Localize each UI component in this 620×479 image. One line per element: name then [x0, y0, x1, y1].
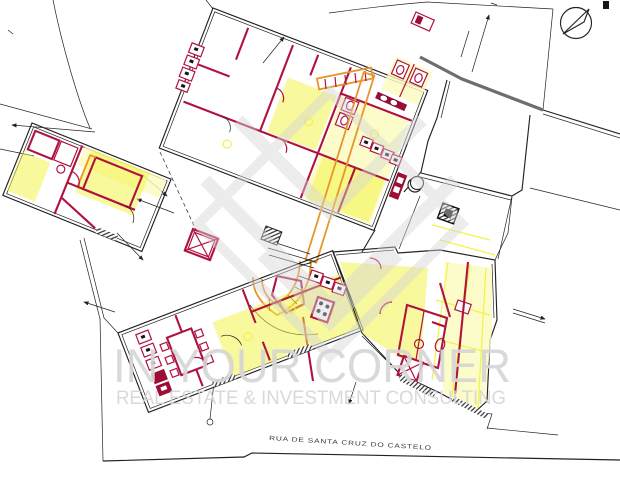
sink-basin: [56, 164, 66, 174]
wing-upper-right: [153, 5, 428, 230]
floor-plan-page: IN YOUR CORNER REAL ESTATE & INVESTMENT …: [0, 0, 620, 479]
courtyard: [399, 57, 620, 259]
bottom-property-line: [103, 453, 620, 461]
retaining-wall-gray: [420, 57, 543, 110]
wing-left: [3, 123, 171, 252]
floor-plan-canvas: IN YOUR CORNER REAL ESTATE & INVESTMENT …: [0, 0, 620, 479]
corner-tick-mark: [603, 1, 609, 9]
bathroom-block-top: [375, 55, 432, 115]
watermark-subtitle: REAL ESTATE & INVESTMENT CONSULTING: [116, 388, 506, 409]
street-label: RUA DE SANTA CRUZ DO CASTELO: [269, 435, 432, 452]
window-sill-hatch: [95, 227, 118, 241]
north-arrow-icon: [561, 8, 592, 39]
watermark-title: IN YOUR CORNER: [113, 339, 511, 392]
roof-detail-top: [411, 12, 434, 31]
